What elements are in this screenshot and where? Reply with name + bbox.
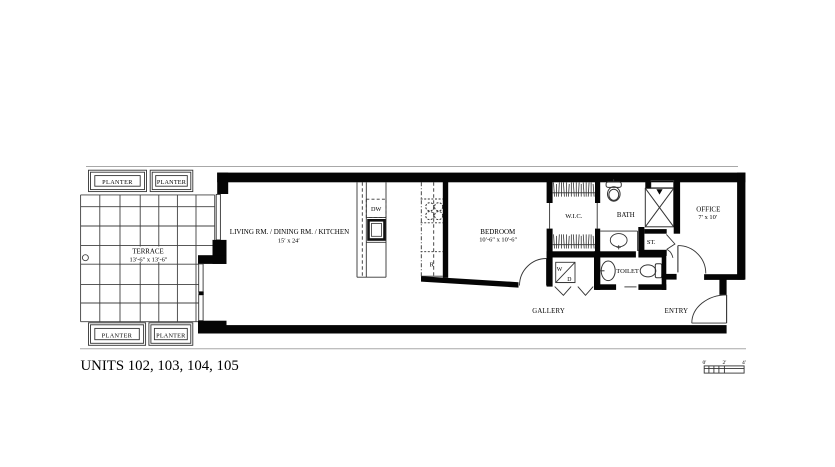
svg-text:UNITS 102, 103, 104, 105: UNITS 102, 103, 104, 105 [81, 358, 239, 374]
svg-text:DW: DW [371, 206, 381, 213]
svg-text:TOILET: TOILET [616, 268, 639, 275]
svg-text:ST.: ST. [647, 239, 656, 246]
svg-text:BATH: BATH [617, 212, 635, 219]
svg-text:D: D [567, 277, 571, 283]
svg-text:LIVING RM. / DINING RM. / KITC: LIVING RM. / DINING RM. / KITCHEN [230, 228, 349, 236]
svg-text:13′-6″ x 13′-6″: 13′-6″ x 13′-6″ [130, 256, 168, 263]
svg-text:TERRACE: TERRACE [132, 249, 163, 256]
svg-text:PLANTER: PLANTER [102, 179, 133, 186]
svg-text:10′-6″ x 10′-6″: 10′-6″ x 10′-6″ [479, 236, 517, 243]
svg-text:ENTRY: ENTRY [665, 308, 689, 315]
svg-text:PLANTER: PLANTER [102, 333, 133, 340]
svg-text:PLANTER: PLANTER [157, 179, 187, 186]
svg-text:0′: 0′ [702, 360, 706, 366]
svg-text:OFFICE: OFFICE [696, 206, 720, 214]
svg-text:BEDROOM: BEDROOM [480, 228, 516, 236]
svg-text:W: W [557, 267, 563, 273]
svg-text:15′ x 24′: 15′ x 24′ [278, 238, 301, 245]
svg-text:GALLERY: GALLERY [532, 308, 565, 315]
svg-text:R: R [430, 261, 435, 268]
svg-text:2′: 2′ [722, 360, 726, 366]
svg-text:PLANTER: PLANTER [156, 333, 186, 340]
svg-text:7′ x 10′: 7′ x 10′ [698, 214, 717, 221]
svg-text:W.I.C.: W.I.C. [565, 213, 583, 220]
svg-text:4′: 4′ [742, 360, 746, 366]
